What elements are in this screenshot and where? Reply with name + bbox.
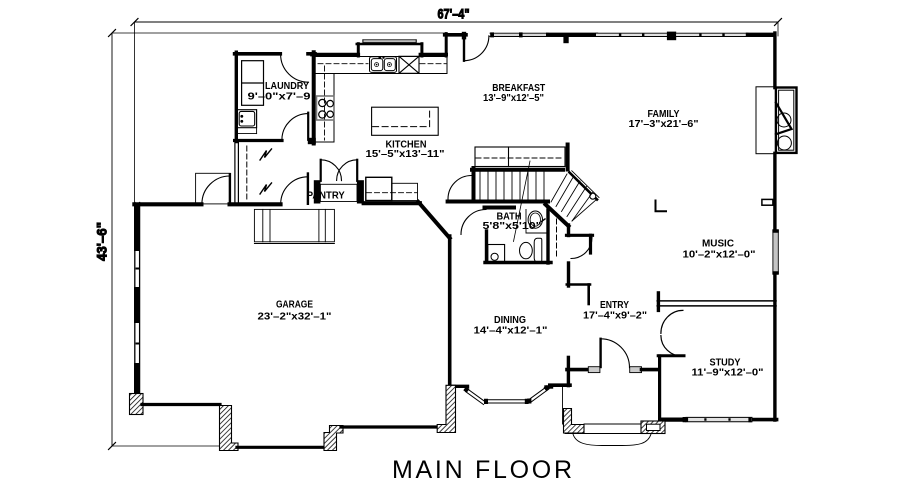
svg-text:GARAGE: GARAGE (276, 300, 313, 311)
svg-text:14'–4"x12'–1": 14'–4"x12'–1" (474, 325, 548, 336)
svg-text:43'–6": 43'–6" (95, 222, 110, 261)
svg-text:LAUNDRY: LAUNDRY (265, 81, 309, 92)
svg-text:67'–4": 67'–4" (438, 7, 470, 22)
svg-text:MUSIC: MUSIC (702, 238, 734, 249)
svg-text:11'–9"x12'–0": 11'–9"x12'–0" (692, 367, 764, 378)
svg-text:23'–2"x32'–1": 23'–2"x32'–1" (258, 311, 332, 322)
svg-text:9'–0"x7'–9: 9'–0"x7'–9 (248, 92, 312, 103)
svg-text:17'–3"x21'–6": 17'–3"x21'–6" (629, 119, 699, 130)
svg-text:17'–4"x9'–2": 17'–4"x9'–2" (583, 311, 647, 322)
svg-text:15'–5"x13'–11": 15'–5"x13'–11" (366, 149, 445, 160)
svg-text:13'–9"x12'–5": 13'–9"x12'–5" (483, 93, 544, 104)
svg-text:10'–2"x12'–0": 10'–2"x12'–0" (683, 249, 756, 260)
svg-text:5'8"x5'10": 5'8"x5'10" (483, 221, 542, 232)
svg-text:PANTRY: PANTRY (307, 190, 345, 201)
svg-text:ENTRY: ENTRY (600, 300, 629, 311)
svg-text:MAIN FLOOR: MAIN FLOOR (392, 456, 572, 484)
svg-text:DINING: DINING (494, 315, 526, 326)
